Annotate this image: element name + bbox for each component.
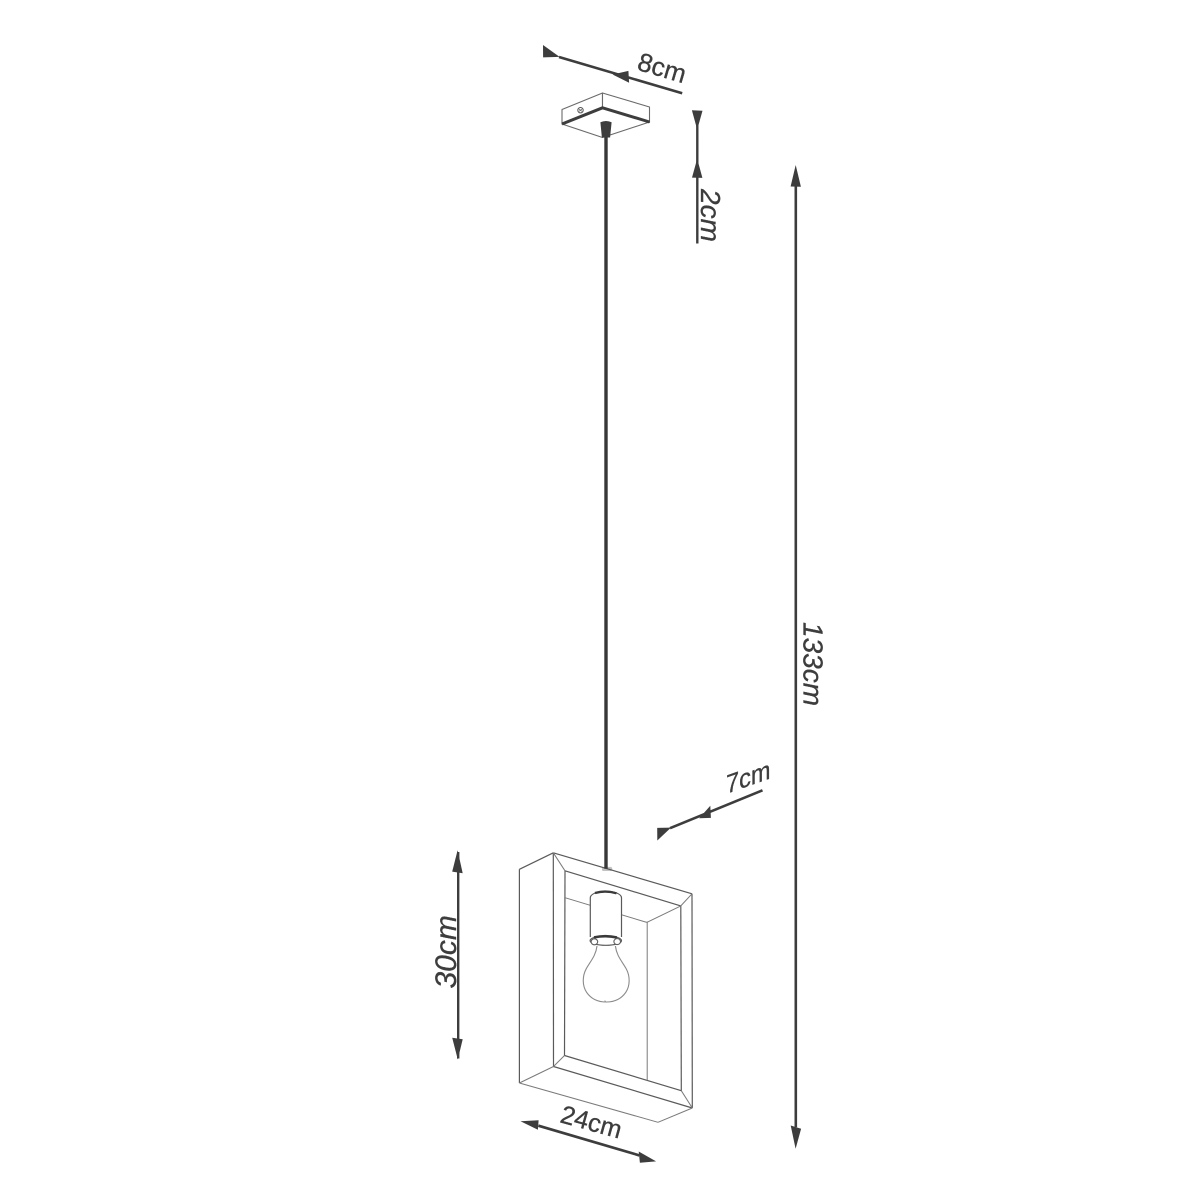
svg-text:133cm: 133cm — [798, 622, 829, 706]
svg-text:30cm: 30cm — [430, 915, 463, 988]
svg-text:2cm: 2cm — [695, 188, 726, 242]
